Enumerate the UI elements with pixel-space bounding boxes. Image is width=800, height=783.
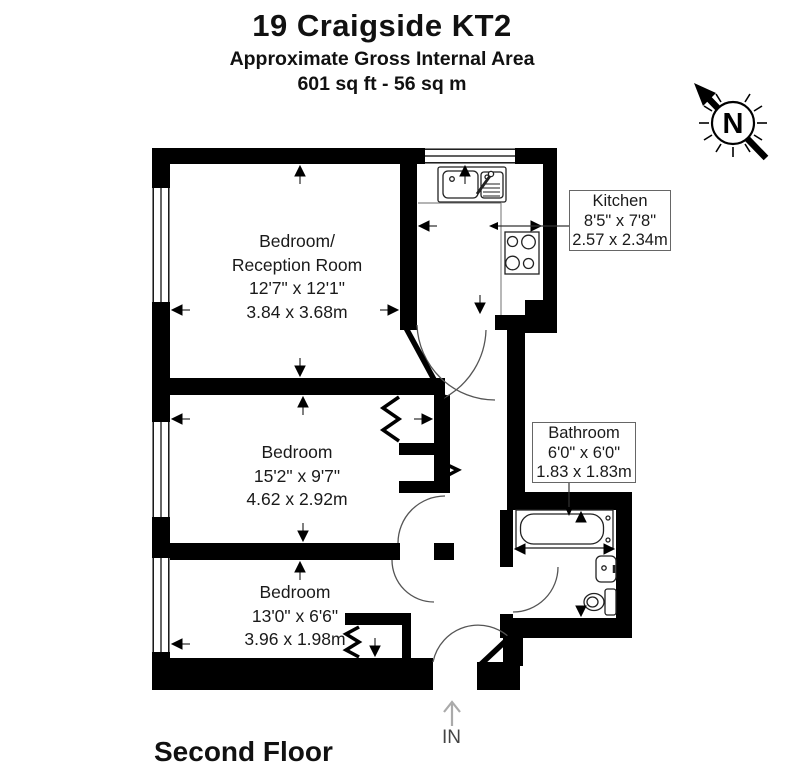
floor-plan-drawing: N xyxy=(0,0,800,783)
wash-basin xyxy=(596,556,616,582)
subtitle-size: 601 sq ft - 56 sq m xyxy=(80,72,684,97)
room-dims-imperial: 12'7" x 12'1" xyxy=(177,277,417,301)
north-compass-icon: N xyxy=(694,83,767,158)
room-dims-metric: 4.62 x 2.92m xyxy=(177,488,417,512)
entrance-arrow-icon xyxy=(444,702,460,726)
north-letter: N xyxy=(723,108,744,140)
door-arc-bedroom-reception xyxy=(444,330,486,398)
label-box-kitchen: Kitchen 8'5" x 7'8" 2.57 x 2.34m xyxy=(569,190,671,251)
room-dims-imperial: 6'0" x 6'0" xyxy=(533,444,635,464)
floorplan-page: N 19 Craigside KT2 Approximate Gross Int… xyxy=(0,0,800,783)
room-dims-imperial: 8'5" x 7'8" xyxy=(570,212,670,232)
room-name: Bedroom xyxy=(175,581,415,605)
kitchen-stove xyxy=(505,232,539,274)
room-name: Bedroom/ xyxy=(177,230,417,254)
page-title: 19 Craigside KT2 xyxy=(80,6,684,46)
kitchen-counter xyxy=(418,203,501,315)
room-dims-metric: 3.84 x 3.68m xyxy=(177,301,417,325)
room-dims-metric: 3.96 x 1.98m xyxy=(175,628,415,652)
subtitle-area: Approximate Gross Internal Area xyxy=(80,46,684,72)
label-box-bathroom: Bathroom 6'0" x 6'0" 1.83 x 1.83m xyxy=(532,422,636,483)
label-bedroom3: Bedroom 13'0" x 6'6" 3.96 x 1.98m xyxy=(175,581,415,652)
door-arc-bathroom xyxy=(513,567,558,612)
bathtub xyxy=(516,510,613,548)
windows xyxy=(152,148,515,652)
room-dims-metric: 2.57 x 2.34m xyxy=(570,231,670,251)
room-dims-imperial: 13'0" x 6'6" xyxy=(175,605,415,629)
room-name: Reception Room xyxy=(177,254,417,278)
toilet xyxy=(584,589,616,615)
floor-name-label: Second Floor xyxy=(154,736,333,768)
label-bedroom-reception: Bedroom/ Reception Room 12'7" x 12'1" 3.… xyxy=(177,230,417,324)
plan-title-block: 19 Craigside KT2 Approximate Gross Inter… xyxy=(80,6,684,97)
bifold-door-bedroom2-closet xyxy=(383,397,399,441)
room-dims-imperial: 15'2" x 9'7" xyxy=(177,465,417,489)
entrance-label: IN xyxy=(442,727,461,749)
label-bedroom2: Bedroom 15'2" x 9'7" 4.62 x 2.92m xyxy=(177,441,417,512)
room-name: Kitchen xyxy=(570,192,670,212)
kitchen-sink xyxy=(438,167,506,202)
room-dims-metric: 1.83 x 1.83m xyxy=(533,463,635,483)
room-name: Bedroom xyxy=(177,441,417,465)
room-name: Bathroom xyxy=(533,424,635,444)
